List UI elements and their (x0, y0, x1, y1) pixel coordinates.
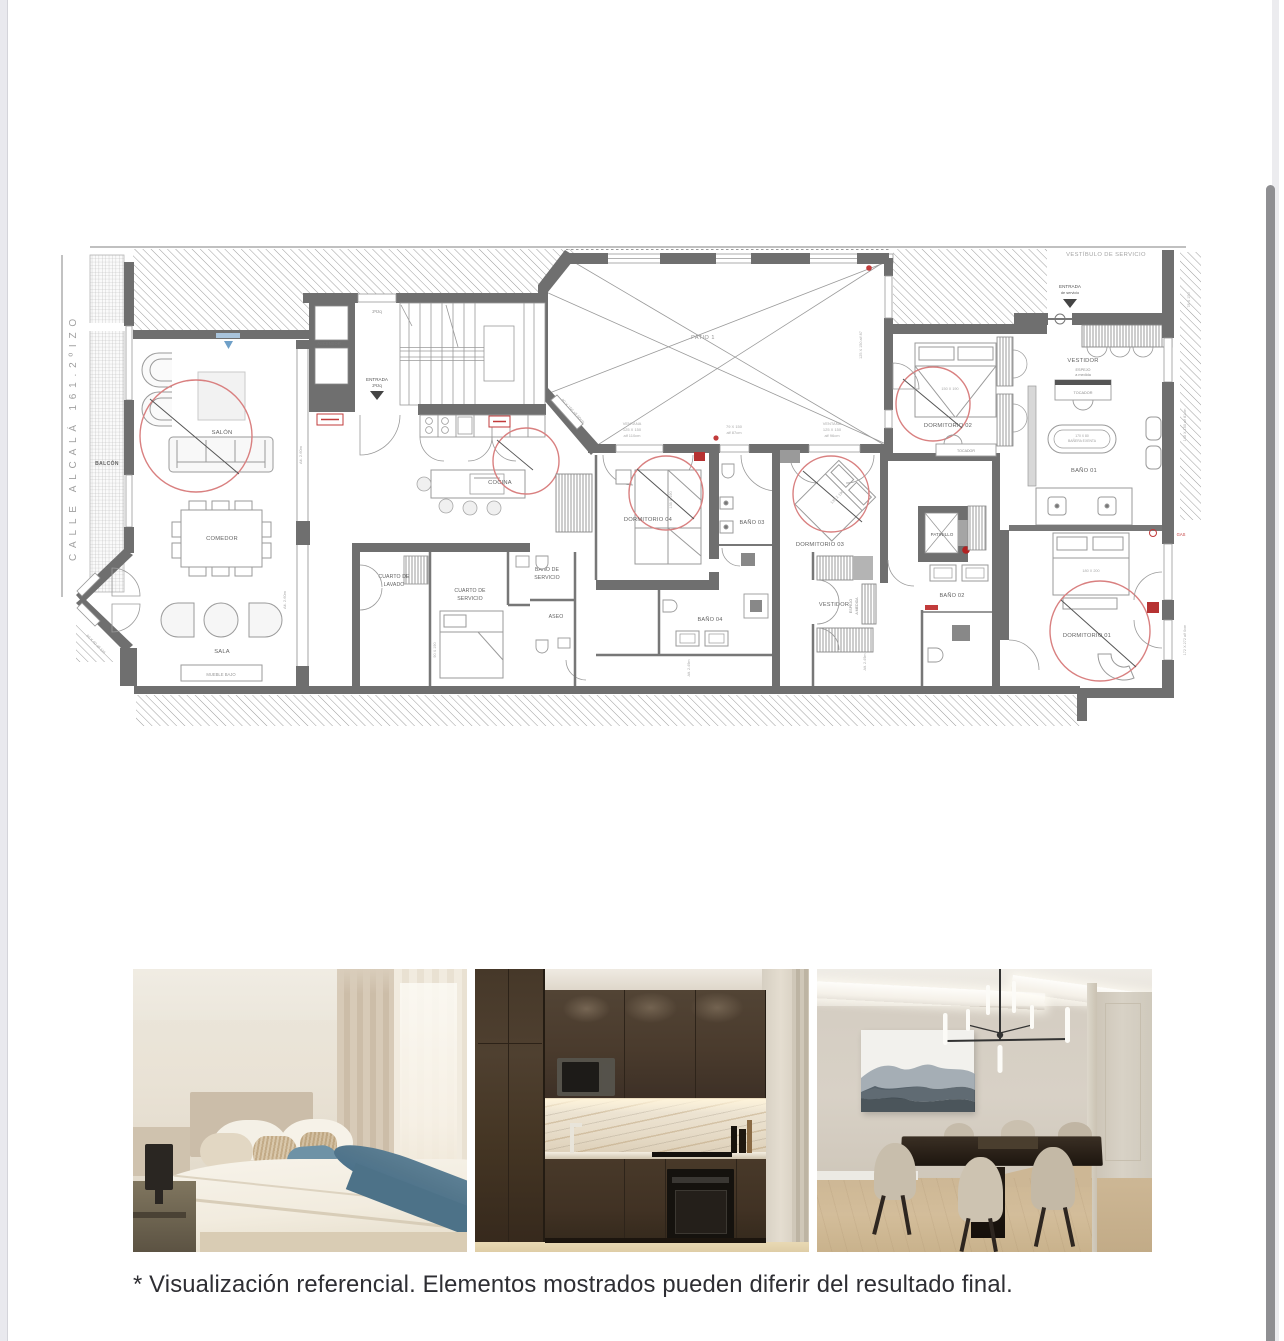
svg-text:2ºIzq: 2ºIzq (372, 309, 382, 314)
svg-text:SALA: SALA (214, 649, 230, 655)
svg-text:VESTIDOR: VESTIDOR (819, 602, 849, 608)
svg-text:TOCADOR: TOCADOR (957, 449, 975, 453)
svg-text:ESPEJO: ESPEJO (849, 599, 853, 613)
svg-text:PATINILLO: PATINILLO (931, 532, 954, 537)
svg-text:CALLE ALCALÁ 161.2ºIZO: CALLE ALCALÁ 161.2ºIZO (66, 313, 79, 561)
svg-text:DORMITORIO 01: DORMITORIO 01 (1063, 633, 1111, 639)
svg-text:Alt. 2.49m: Alt. 2.49m (863, 653, 867, 670)
svg-text:BAÑERA EXENTA: BAÑERA EXENTA (1068, 438, 1097, 443)
svg-text:170 X 80: 170 X 80 (1075, 434, 1089, 438)
svg-text:78 X 150: 78 X 150 (1187, 292, 1191, 307)
svg-text:ESPEJO: ESPEJO (1076, 368, 1091, 372)
svg-text:Alt. 2.49m: Alt. 2.49m (687, 659, 691, 676)
svg-text:COMEDOR: COMEDOR (206, 536, 238, 542)
svg-text:ENTRADA: ENTRADA (1059, 284, 1082, 289)
svg-text:TOCADOR: TOCADOR (1074, 391, 1093, 395)
svg-text:A MEDIDA: A MEDIDA (855, 597, 859, 615)
svg-text:DORMITORIO 03: DORMITORIO 03 (796, 542, 844, 548)
svg-text:alf 87cm: alf 87cm (726, 430, 742, 435)
svg-text:DORMITORIO 02: DORMITORIO 02 (924, 423, 972, 429)
svg-text:SALÓN: SALÓN (212, 429, 233, 436)
svg-text:Alt. 2.60m: Alt. 2.60m (298, 445, 303, 464)
svg-text:BALCÓN: BALCÓN (95, 459, 119, 467)
svg-text:SERVICIO: SERVICIO (534, 575, 560, 581)
svg-text:alf 110cm: alf 110cm (623, 433, 641, 438)
svg-text:BAÑO 04: BAÑO 04 (697, 616, 722, 623)
svg-text:de servicio: de servicio (1061, 291, 1079, 295)
svg-text:CUARTO DE: CUARTO DE (378, 574, 410, 580)
svg-text:COCINA: COCINA (488, 480, 512, 486)
svg-text:MUEBLE BAJO: MUEBLE BAJO (206, 672, 236, 677)
svg-text:ASCENSOR: ASCENSOR (317, 341, 341, 346)
svg-text:GAS: GAS (1177, 532, 1186, 537)
svg-text:2ºIzq: 2ºIzq (372, 383, 382, 388)
svg-text:Alt. 2.60m: Alt. 2.60m (282, 590, 287, 609)
svg-text:90 X 190: 90 X 190 (433, 642, 437, 657)
svg-text:BAÑO 02: BAÑO 02 (939, 592, 964, 599)
svg-text:VESTÍBULO DE SERVICIO: VESTÍBULO DE SERVICIO (1066, 251, 1146, 258)
svg-text:BAÑO 01: BAÑO 01 (1071, 467, 1097, 474)
svg-text:CUARTO DE: CUARTO DE (454, 588, 486, 594)
svg-text:125 X 150: 125 X 150 (623, 427, 642, 432)
svg-text:alf 96cm: alf 96cm (824, 433, 840, 438)
svg-text:125 X 150 alf 87: 125 X 150 alf 87 (859, 331, 863, 359)
svg-text:VENTANA: VENTANA (623, 421, 642, 426)
svg-text:VENTANA: VENTANA (823, 421, 842, 426)
svg-text:ENTRADA: ENTRADA (366, 377, 389, 382)
svg-text:140 X 150 alf 81cm: 140 X 150 alf 81cm (1183, 409, 1187, 442)
svg-text:150 X 190: 150 X 190 (941, 387, 958, 391)
svg-text:ASEO: ASEO (549, 614, 564, 620)
svg-text:VESTIDOR: VESTIDOR (1067, 358, 1098, 364)
svg-text:PATIO 1: PATIO 1 (691, 335, 715, 341)
svg-text:BAÑO 03: BAÑO 03 (739, 519, 764, 526)
svg-text:DORMITORIO 04: DORMITORIO 04 (624, 517, 673, 523)
svg-text:a medida: a medida (1075, 373, 1092, 377)
svg-text:LAVADO: LAVADO (384, 582, 405, 588)
svg-text:79 X 150: 79 X 150 (726, 424, 743, 429)
svg-text:SERVICIO: SERVICIO (457, 596, 483, 602)
svg-text:125 X 150: 125 X 150 (823, 427, 842, 432)
svg-text:172 X 272 alf 0cm: 172 X 272 alf 0cm (1183, 625, 1187, 656)
svg-text:180 X 200: 180 X 200 (1082, 569, 1099, 573)
